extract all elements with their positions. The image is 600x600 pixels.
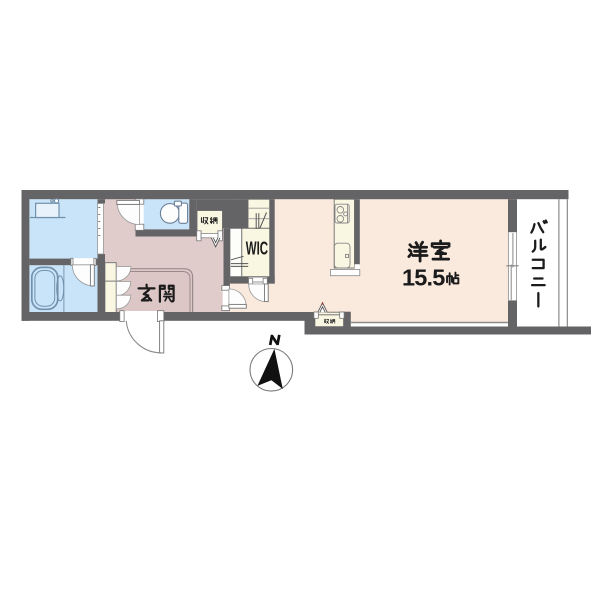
svg-text:15.5: 15.5 bbox=[402, 265, 445, 291]
svg-text:WIC: WIC bbox=[246, 239, 268, 259]
